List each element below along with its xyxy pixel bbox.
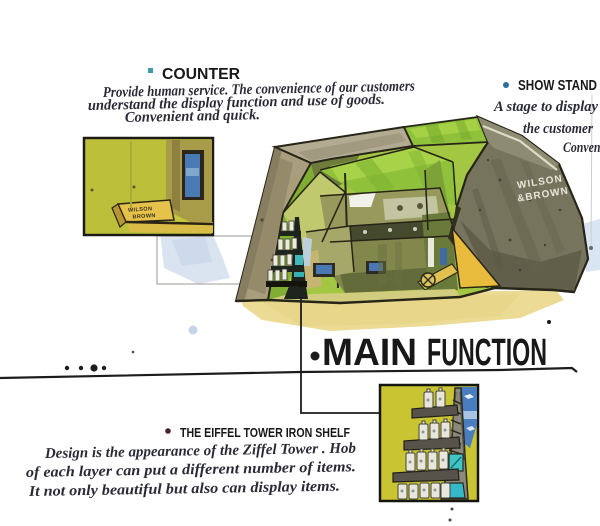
svg-text:SHOW STAND: SHOW STAND [518,77,597,94]
svg-text:of each layer can put a differ: of each layer can put a different number… [26,459,356,481]
svg-text:A stage to display: A stage to display [493,99,598,115]
svg-text:THE EIFFEL TOWER IRON SHELF: THE EIFFEL TOWER IRON SHELF [180,426,350,440]
svg-text:COUNTER: COUNTER [162,66,240,83]
svg-text:It not only beautiful but also: It not only beautiful but also can displ… [28,479,340,500]
svg-text:FUNCTION: FUNCTION [427,332,547,374]
svg-text:Design is the appearance of th: Design is the appearance of the Ziffel T… [44,441,357,462]
svg-text:MAIN: MAIN [322,332,417,374]
svg-text:the customer: the customer [523,121,593,137]
svg-text:Convenie: Convenie [563,140,600,156]
svg-text:Convenient and quick.: Convenient and quick. [125,107,260,126]
